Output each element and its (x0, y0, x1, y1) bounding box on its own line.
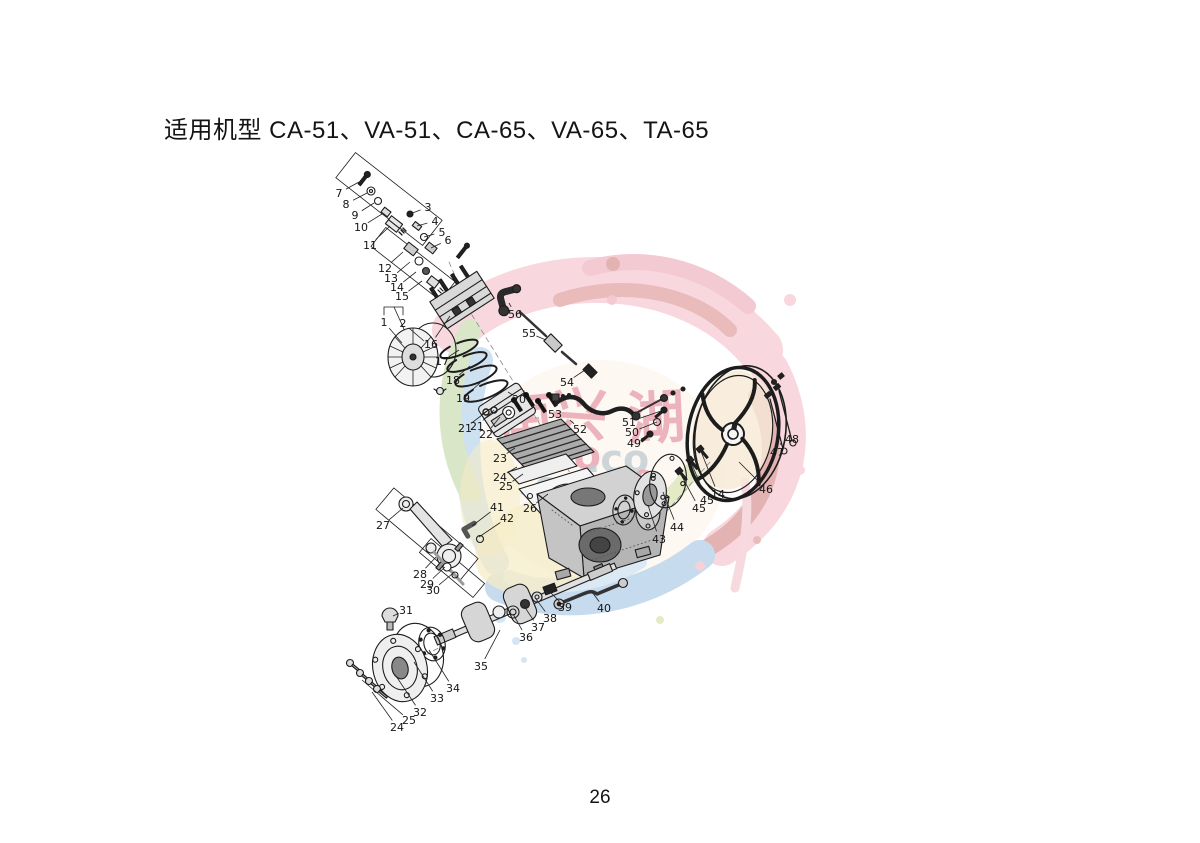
leader-line-8 (353, 193, 367, 200)
part-label-19: 19 (456, 392, 470, 405)
part-label-20: 20 (512, 393, 526, 406)
part-label-56: 56 (508, 308, 522, 321)
elbow-fitting (464, 523, 484, 542)
page-title: 适用机型 CA-51、VA-51、CA-65、VA-65、TA-65 (164, 110, 709, 145)
line-art (336, 153, 797, 708)
part-label-44: 44 (670, 521, 684, 534)
part-label-22: 22 (479, 428, 493, 441)
part-label-26: 26 (523, 502, 537, 515)
part-label-35: 35 (474, 660, 488, 673)
connecting-rod (399, 497, 463, 570)
part-label-6: 6 (445, 234, 452, 247)
part-label-33: 33 (430, 692, 444, 705)
leader-line-42 (479, 522, 500, 537)
part-label-55: 55 (522, 327, 536, 340)
leader-line-10 (368, 214, 382, 223)
part-label-40: 40 (597, 602, 611, 615)
page-number: 26 (0, 787, 1200, 809)
part-label-47: 47 (770, 446, 784, 459)
leader-line-11 (376, 226, 390, 239)
part-label-54: 54 (560, 376, 574, 389)
part-label-8: 8 (343, 198, 350, 211)
part-label-18: 18 (446, 374, 460, 387)
part-label-27: 27 (376, 519, 390, 532)
part-label-14: 14 (711, 488, 725, 501)
part-label-10: 10 (354, 221, 368, 234)
valve-assembly (423, 260, 494, 328)
part-label-32: 32 (413, 706, 427, 719)
leader-line-15 (408, 281, 422, 291)
part-label-15: 15 (395, 290, 409, 303)
part-label-2: 2 (400, 317, 407, 330)
part-label-52: 52 (573, 423, 587, 436)
part-label-30: 30 (426, 584, 440, 597)
part-label-11: 11 (363, 239, 377, 252)
part-label-31: 31 (399, 604, 413, 617)
part-label-42: 42 (500, 512, 514, 525)
leader-line-13 (397, 262, 410, 273)
leader-line-41 (472, 512, 491, 526)
leader-line-27 (389, 508, 403, 520)
leader-line-9 (362, 203, 374, 211)
breather-cap (382, 608, 398, 630)
part-label-17: 17 (435, 355, 449, 368)
part-label-23: 23 (493, 452, 507, 465)
part-label-53: 53 (548, 408, 562, 421)
leader-line-56 (509, 303, 511, 307)
part-label-48: 48 (785, 433, 799, 446)
part-label-1: 1 (381, 316, 388, 329)
leader-line-7 (346, 182, 359, 189)
leader-line-55 (536, 336, 546, 340)
part-label-46: 46 (759, 483, 773, 496)
part-label-34: 34 (446, 682, 460, 695)
part-label-4: 4 (432, 215, 439, 228)
document-page: 适用机型 CA-51、VA-51、CA-65、VA-65、TA-65 (0, 0, 1200, 843)
leader-line-50 (639, 422, 657, 429)
part-label-38: 38 (543, 612, 557, 625)
part-label-39: 39 (558, 601, 572, 614)
leader-line-12 (391, 252, 403, 263)
leader-line-47 (780, 443, 781, 445)
part-label-16: 16 (424, 338, 438, 351)
part-label-3: 3 (425, 201, 432, 214)
part-label-25: 25 (499, 480, 513, 493)
leader-line-54 (574, 370, 585, 378)
part-label-43: 43 (652, 533, 666, 546)
part-label-7: 7 (336, 187, 343, 200)
part-label-51: 51 (622, 416, 636, 429)
leader-line-30 (439, 574, 452, 585)
